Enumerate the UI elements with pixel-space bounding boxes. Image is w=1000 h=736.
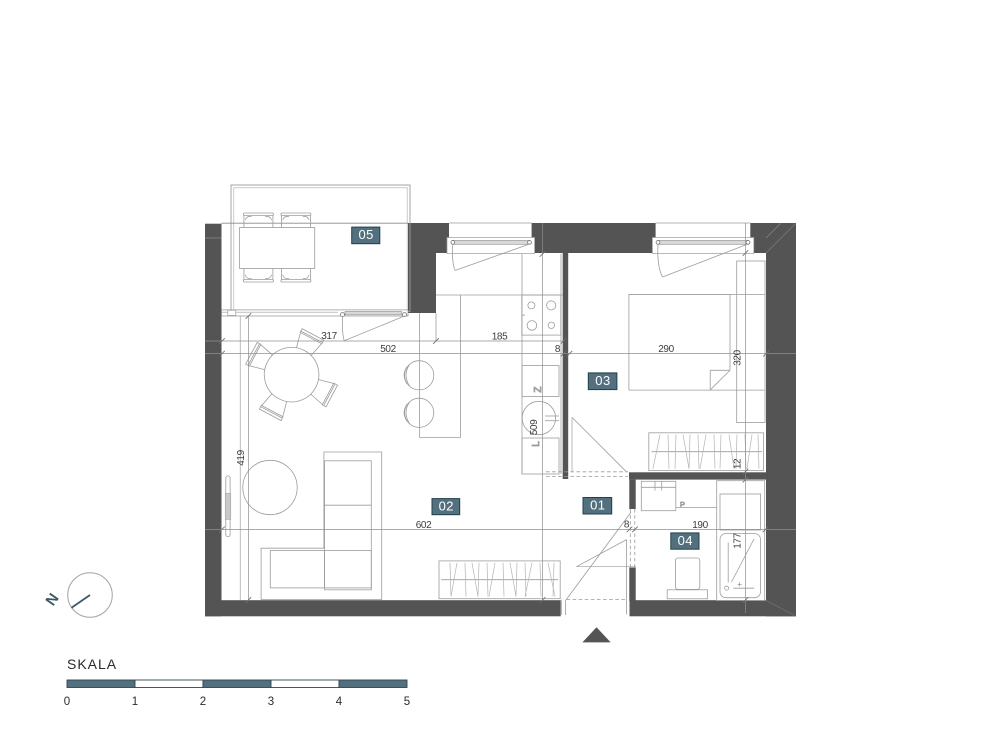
svg-text:SKALA: SKALA [67, 656, 117, 672]
svg-text:4: 4 [336, 696, 343, 708]
svg-text:2: 2 [200, 696, 206, 708]
svg-text:502: 502 [380, 344, 396, 355]
svg-text:01: 01 [590, 498, 605, 513]
svg-text:290: 290 [658, 344, 674, 355]
svg-text:190: 190 [692, 520, 708, 531]
svg-text:03: 03 [595, 373, 610, 388]
svg-text:509: 509 [529, 419, 540, 435]
svg-text:419: 419 [236, 449, 247, 465]
svg-text:185: 185 [492, 332, 508, 343]
svg-text:177: 177 [733, 532, 744, 548]
svg-text:602: 602 [416, 520, 432, 531]
svg-text:320: 320 [733, 349, 744, 365]
svg-text:L: L [531, 441, 542, 447]
svg-text:12: 12 [733, 458, 744, 469]
svg-text:317: 317 [321, 331, 337, 342]
svg-text:02: 02 [439, 499, 454, 514]
svg-text:8: 8 [624, 520, 630, 531]
svg-text:05: 05 [358, 227, 373, 242]
svg-text:8: 8 [555, 344, 561, 355]
svg-text:5: 5 [404, 696, 410, 708]
svg-text:P: P [680, 500, 685, 509]
svg-text:04: 04 [678, 533, 693, 548]
svg-text:0: 0 [64, 696, 70, 708]
svg-text:1: 1 [132, 696, 138, 708]
svg-text:3: 3 [268, 696, 274, 708]
